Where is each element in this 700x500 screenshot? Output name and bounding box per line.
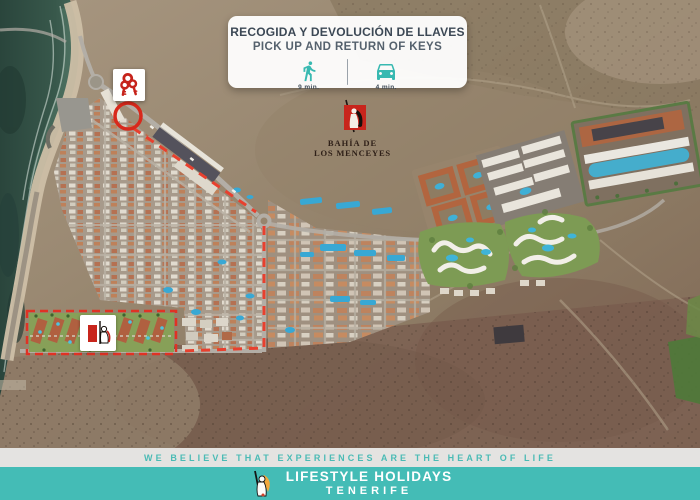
mode-divider: [347, 59, 349, 85]
bahia-figure-icon: [336, 99, 370, 137]
brand-bar: LIFESTYLE HOLIDAYS TENERIFE: [0, 467, 700, 500]
brand-text: LIFESTYLE HOLIDAYS TENERIFE: [286, 469, 453, 497]
brand-location: TENERIFE: [286, 485, 453, 498]
resort-area-logo-marker: [80, 315, 116, 351]
resort-name-line2: LOS MENCEYES: [295, 148, 410, 158]
keys-pickup-marker: [113, 69, 145, 101]
walk-duration: 9 min.: [298, 84, 319, 91]
resort-name-line1: BAHÍA DE: [295, 138, 410, 148]
travel-modes: 9 min. 4 min.: [228, 59, 467, 91]
resort-logo-overlay: BAHÍA DE LOS MENCEYES: [295, 99, 410, 158]
card-title-english: PICK UP AND RETURN OF KEYS: [228, 41, 467, 53]
tagline-bar: WE BELIEVE THAT EXPERIENCES ARE THE HEAR…: [0, 448, 700, 467]
bahia-mini-figure-icon: [83, 318, 113, 348]
walk-mode: 9 min.: [277, 59, 341, 91]
drive-mode: 4 min.: [354, 59, 418, 91]
promo-map-image: BAHÍA DE LOS MENCEYES RECOGIDA Y DEVOLUC…: [0, 0, 700, 500]
guanche-warrior-logo-icon: [248, 470, 274, 498]
walking-person-icon: [298, 59, 320, 83]
pickup-return-card: RECOGIDA Y DEVOLUCIÓN DE LLAVES PICK UP …: [228, 16, 467, 88]
brand-name: LIFESTYLE HOLIDAYS: [286, 469, 453, 485]
card-title-spanish: RECOGIDA Y DEVOLUCIÓN DE LLAVES: [228, 25, 467, 39]
car-icon: [373, 59, 399, 83]
red-keys-icon: [115, 71, 143, 99]
tagline-text: WE BELIEVE THAT EXPERIENCES ARE THE HEAR…: [144, 453, 556, 463]
roundabout: [89, 75, 103, 89]
drive-duration: 4 min.: [376, 84, 397, 91]
